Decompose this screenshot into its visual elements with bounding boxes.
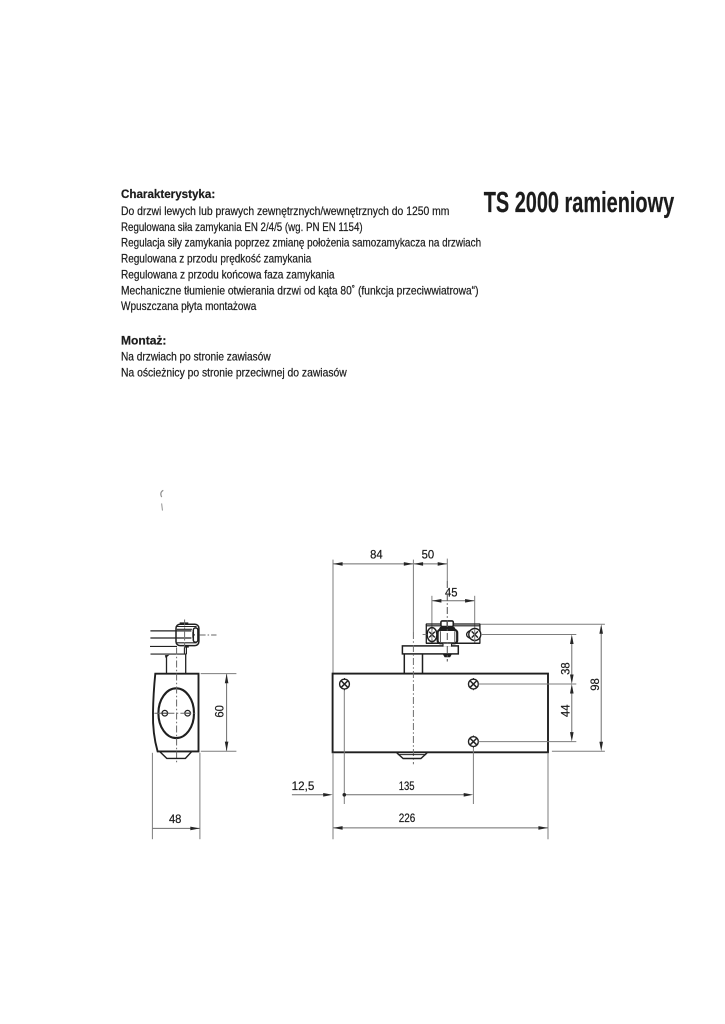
svg-text:44: 44 — [559, 704, 573, 717]
svg-text:Do drzwi lewych lub prawych ze: Do drzwi lewych lub prawych zewnętrznych… — [121, 204, 449, 218]
svg-text:12,5: 12,5 — [292, 779, 315, 793]
svg-text:Charakterystyka:: Charakterystyka: — [121, 187, 215, 201]
svg-text:Regulowana z przodu prędkość z: Regulowana z przodu prędkość zamykania — [121, 251, 312, 265]
svg-text:38: 38 — [559, 662, 573, 675]
svg-text:Na ościeżnicy po stronie przec: Na ościeżnicy po stronie przeciwnej do z… — [121, 365, 347, 379]
svg-text:Regulowana siła zamykania EN 2: Regulowana siła zamykania EN 2/4/5 (wg. … — [121, 220, 363, 234]
svg-text:Montaż:: Montaż: — [121, 333, 166, 347]
svg-text:48: 48 — [169, 812, 182, 826]
svg-text:98: 98 — [588, 678, 602, 691]
svg-text:Mechaniczne tłumienie otwieran: Mechaniczne tłumienie otwierania drzwi o… — [121, 283, 479, 297]
svg-text:Wpuszczana płyta montażowa: Wpuszczana płyta montażowa — [121, 299, 257, 313]
svg-text:Regulowana z przodu końcowa fa: Regulowana z przodu końcowa faza zamykan… — [121, 267, 335, 281]
svg-text:60: 60 — [212, 705, 226, 718]
svg-text:Na drzwiach po stronie zawiasó: Na drzwiach po stronie zawiasów — [121, 349, 271, 363]
svg-text:135: 135 — [399, 779, 415, 793]
svg-text:226: 226 — [399, 811, 416, 825]
svg-text:TS 2000 ramieniowy: TS 2000 ramieniowy — [484, 187, 675, 219]
svg-text:Regulacja siły zamykania poprz: Regulacja siły zamykania poprzez zmianę … — [121, 236, 481, 250]
svg-text:84: 84 — [370, 547, 383, 561]
svg-text:50: 50 — [422, 547, 435, 561]
